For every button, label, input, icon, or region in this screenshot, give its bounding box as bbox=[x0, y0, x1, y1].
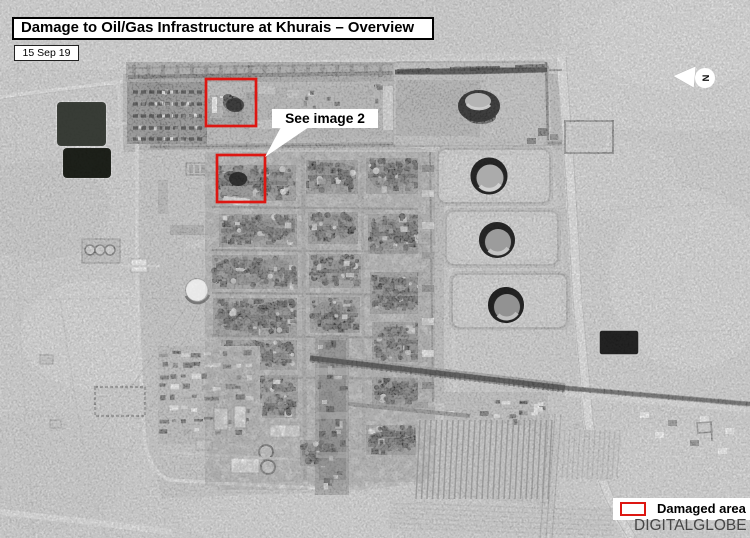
svg-text:N: N bbox=[700, 75, 711, 82]
